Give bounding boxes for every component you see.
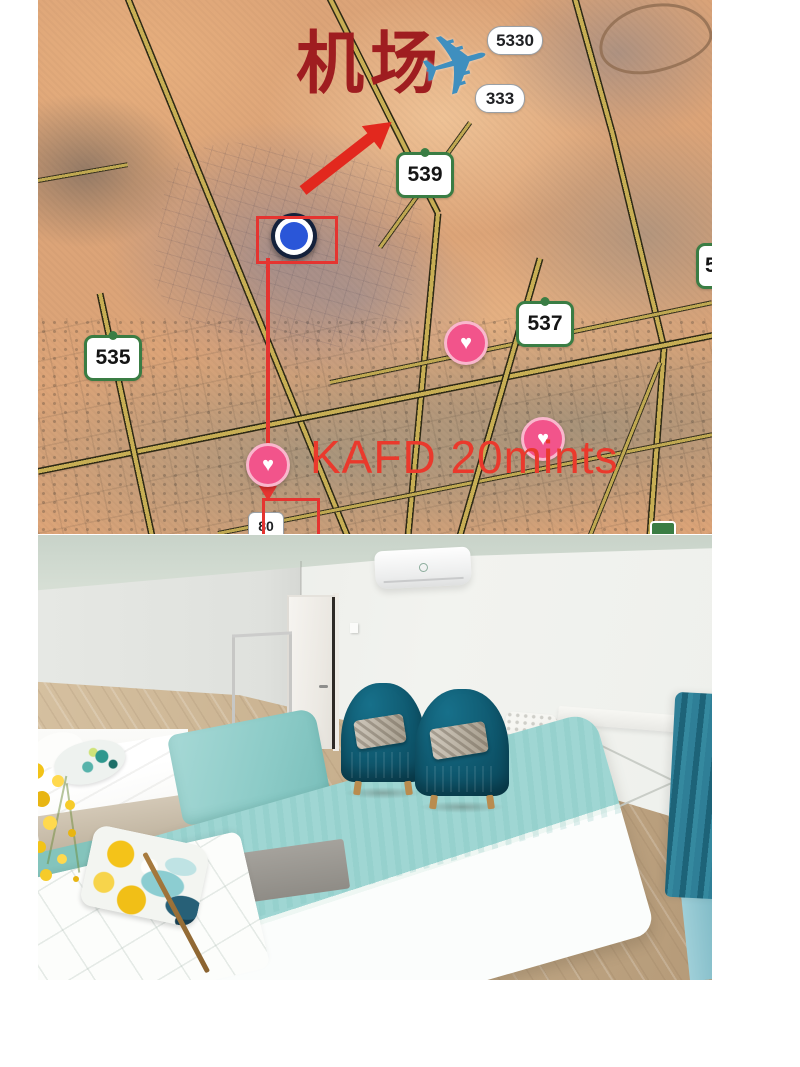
heart-icon: ♥ <box>262 454 274 477</box>
armchair-left <box>341 683 425 795</box>
chair-leg <box>404 781 413 796</box>
route-shield-535: 535 <box>84 335 142 381</box>
heart-icon: ♥ <box>460 332 472 355</box>
favorite-pin: ♥ <box>246 443 290 487</box>
bedroom-photo <box>38 535 712 980</box>
route-shield-537: 537 <box>516 301 574 347</box>
satellite-map: 机场 ✈ 5330 333 539 537 535 5 80 ♥ ♥ ♥ KAF… <box>38 0 712 534</box>
light-switch <box>350 623 358 633</box>
chair-leg <box>486 795 495 810</box>
favorite-pin: ♥ <box>444 321 488 365</box>
yellow-flowers <box>38 763 48 783</box>
road-badge-5330: 5330 <box>487 26 543 55</box>
racetrack-outline <box>592 0 712 83</box>
destination-highlight-box <box>262 498 320 534</box>
door-handle <box>319 685 328 688</box>
route-shield-539: 539 <box>396 152 454 198</box>
partial-green-badge <box>650 521 676 534</box>
flower-blossoms <box>38 763 44 779</box>
ac-logo <box>419 563 428 572</box>
door-gap <box>332 597 335 749</box>
marker-highlight-box <box>256 216 338 264</box>
route-shield-partial: 5 <box>696 243 712 289</box>
armchair-right <box>415 689 509 809</box>
air-conditioner <box>374 547 472 590</box>
highway-road <box>38 162 128 183</box>
listing-composite-image: 机场 ✈ 5330 333 539 537 535 5 80 ♥ ♥ ♥ KAF… <box>0 0 800 1067</box>
kafd-distance-label: KAFD 20mints <box>310 430 619 484</box>
